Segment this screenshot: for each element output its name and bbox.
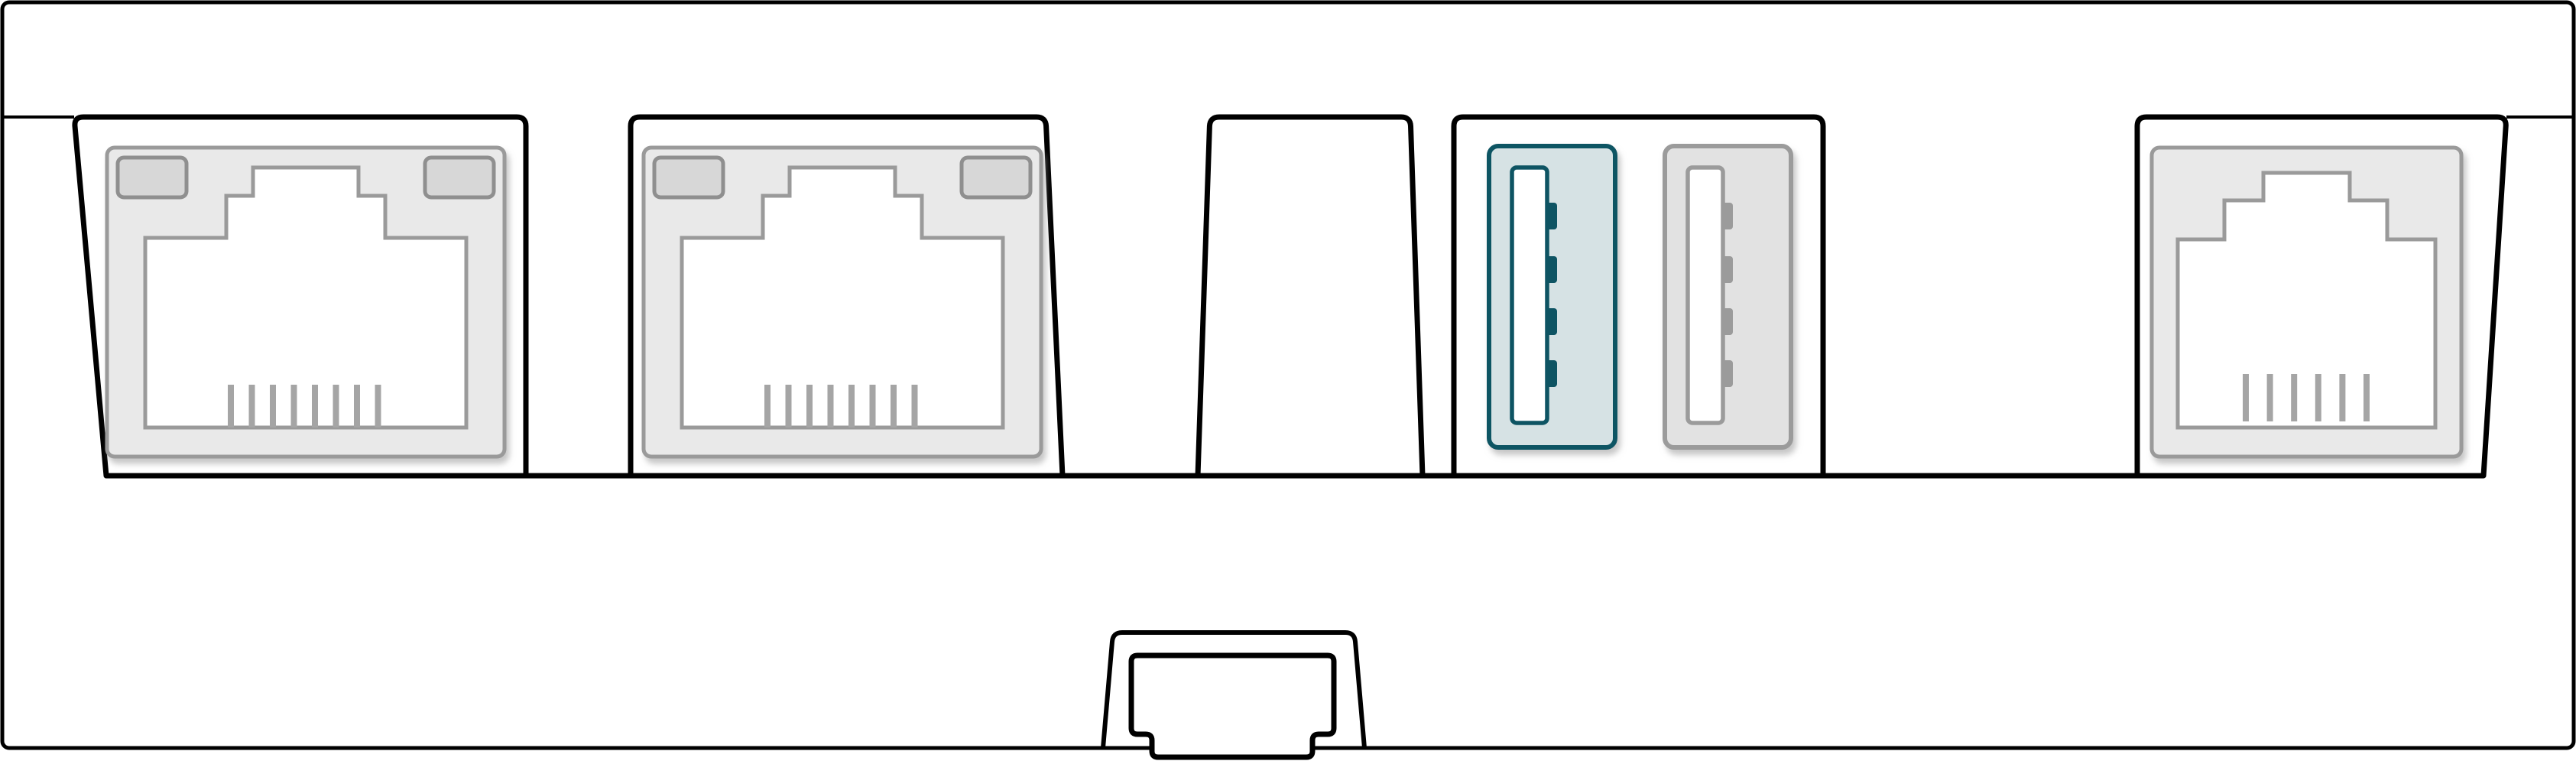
ethernet-port-1: Ethernet port 1 [107, 148, 504, 457]
usb-port-1-slot [1512, 167, 1547, 423]
ethernet-port-2-led-left [654, 158, 723, 197]
bay-empty: Empty bay [1198, 117, 1423, 476]
dock-connector: Bottom docking connector [1131, 655, 1334, 757]
ethernet-port-2-led-right [962, 158, 1030, 197]
usb-port-2-slot [1688, 167, 1723, 423]
phone-port: Phone line port [2152, 148, 2461, 457]
ethernet-port-2: Ethernet port 2 [644, 148, 1041, 457]
usb-port-1: USB port 1 (highlighted) [1489, 146, 1615, 447]
usb-port-2: USB port 2 [1665, 146, 1791, 447]
panel-diagram: Device rear panel connector diagram Ethe… [0, 0, 2576, 761]
ethernet-port-1-led-left [118, 158, 187, 197]
ethernet-port-1-led-right [425, 158, 494, 197]
usb-port-1-body [1489, 146, 1615, 447]
usb-port-2-body [1665, 146, 1791, 447]
panel-diagram-svg: Device rear panel connector diagram Ethe… [0, 0, 2576, 761]
